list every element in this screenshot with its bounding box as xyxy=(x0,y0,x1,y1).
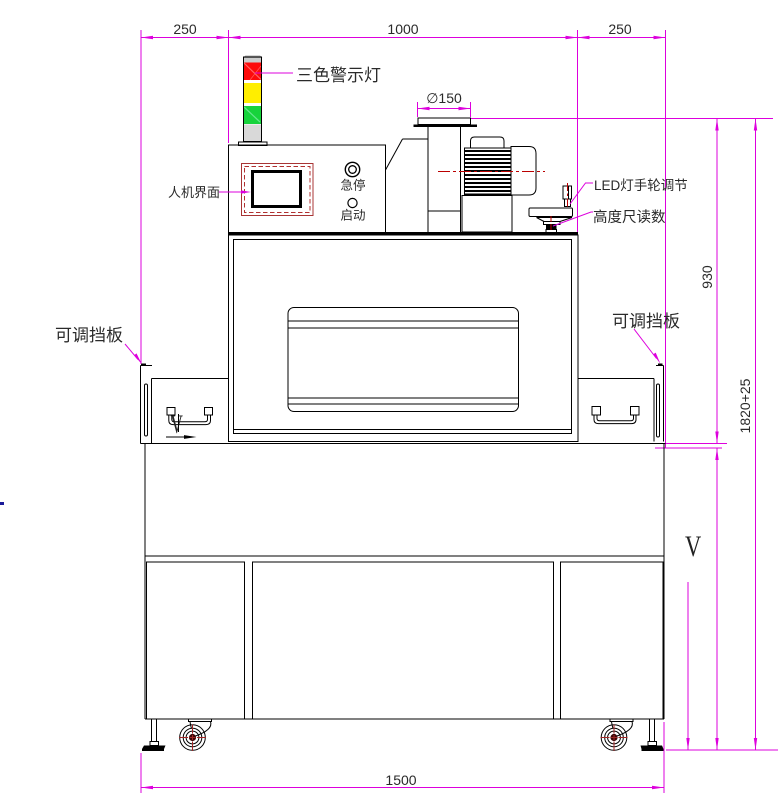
svg-text:高度尺读数: 高度尺读数 xyxy=(593,209,666,226)
svg-text:可调挡板: 可调挡板 xyxy=(55,326,123,345)
svg-text:急停: 急停 xyxy=(340,178,365,193)
svg-text:1000: 1000 xyxy=(387,21,418,37)
svg-text:V: V xyxy=(171,409,183,439)
svg-text:启动: 启动 xyxy=(340,209,365,223)
svg-text:930: 930 xyxy=(699,265,715,289)
svg-text:1500: 1500 xyxy=(385,772,416,788)
svg-text:1820+25: 1820+25 xyxy=(737,378,753,433)
svg-text:250: 250 xyxy=(608,21,632,37)
svg-text:V: V xyxy=(685,529,701,563)
svg-text:∅150: ∅150 xyxy=(426,90,462,106)
svg-text:三色警示灯: 三色警示灯 xyxy=(296,66,381,85)
svg-text:人机界面: 人机界面 xyxy=(168,185,220,200)
svg-text:可调挡板: 可调挡板 xyxy=(612,312,680,331)
svg-text:LED灯手轮调节: LED灯手轮调节 xyxy=(594,178,688,193)
svg-text:250: 250 xyxy=(173,21,197,37)
